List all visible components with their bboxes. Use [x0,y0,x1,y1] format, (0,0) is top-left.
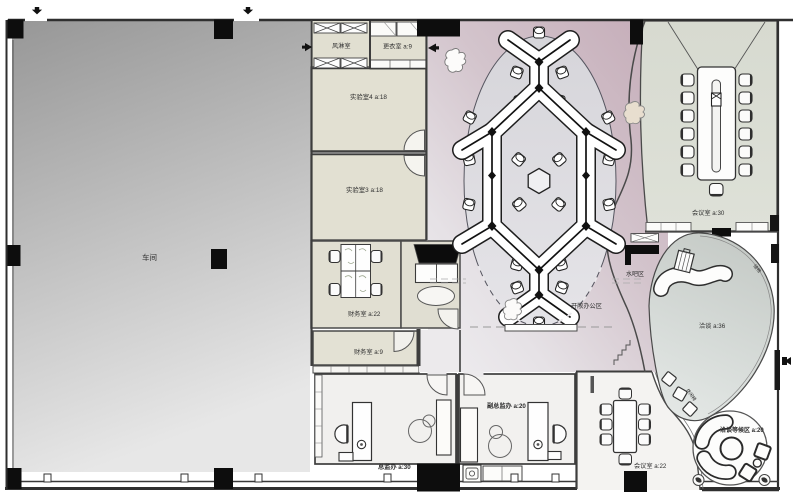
svg-text:车间: 车间 [142,252,157,262]
svg-text:风淋室: 风淋室 [332,42,351,50]
svg-text:实验室3 a:18: 实验室3 a:18 [346,185,383,194]
svg-text:总监办 a:30: 总监办 a:30 [378,463,411,471]
svg-text:副总监办 a:20: 副总监办 a:20 [487,402,526,410]
svg-text:开敞办公区: 开敞办公区 [571,302,602,310]
svg-text:财务室 a:22: 财务室 a:22 [348,310,381,318]
svg-text:洽谈等候区 a:20: 洽谈等候区 a:20 [720,426,764,434]
svg-text:财务室 a:9: 财务室 a:9 [354,348,383,356]
svg-text:会议室 a:22: 会议室 a:22 [634,462,667,470]
svg-text:水吧区: 水吧区 [626,270,644,278]
svg-text:洽谈 a:36: 洽谈 a:36 [699,322,726,330]
svg-text:实验室4 a:18: 实验室4 a:18 [350,92,387,101]
svg-text:更衣室 a:9: 更衣室 a:9 [383,43,412,51]
svg-text:会议室 a:30: 会议室 a:30 [692,209,725,217]
